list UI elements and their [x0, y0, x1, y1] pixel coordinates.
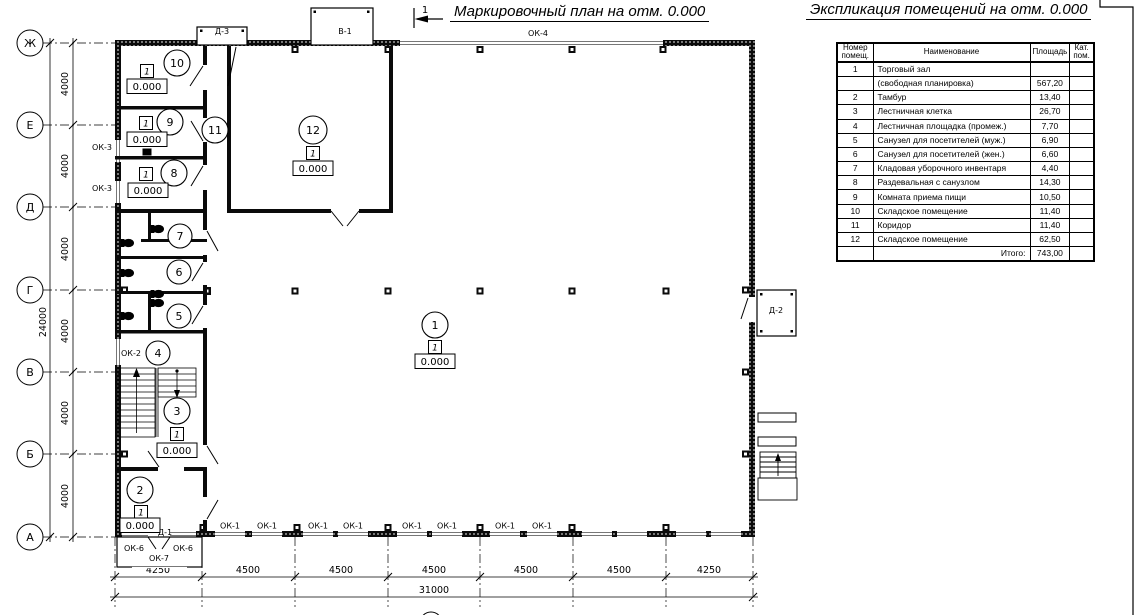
label-v1: В-1	[338, 27, 351, 36]
exterior-stair	[758, 452, 797, 500]
label-ok2: ОК-2	[121, 349, 141, 358]
table-row: 6Санузел для посетителей (жен.)6,60	[837, 147, 1094, 161]
label-d3: Д-3	[215, 27, 229, 36]
label-ok1: ОК-1	[220, 522, 240, 531]
room-6-annotation: 6	[167, 260, 191, 284]
table-row: 12Складское помещение62,50	[837, 233, 1094, 247]
room-number: 7	[177, 230, 184, 243]
cell-name: Тамбур	[873, 91, 1030, 105]
dim-4500: 4500	[607, 565, 631, 576]
cell-area: 6,60	[1030, 147, 1070, 161]
door-leaves	[148, 47, 748, 549]
frame-corner	[1100, 0, 1133, 615]
room-number: 12	[306, 124, 320, 137]
elevation: 0.000	[134, 186, 163, 197]
cell-area: 7,70	[1030, 119, 1070, 133]
cell-area	[1030, 62, 1070, 77]
cell-area: 14,30	[1030, 176, 1070, 190]
room-4-annotation: 4	[146, 341, 170, 365]
room-3-annotation: 3 1 0.000	[157, 398, 197, 458]
label-ok3: ОК-3	[92, 184, 112, 193]
room-number: 10	[170, 57, 184, 70]
section-number: 1	[422, 5, 428, 16]
table-row: 10Складское помещение11,40	[837, 204, 1094, 218]
axis-label-v: В	[26, 366, 34, 379]
room-number: 11	[208, 124, 222, 137]
label-ok6: ОК-6	[124, 544, 144, 553]
cell-area: 4,40	[1030, 162, 1070, 176]
table-row: 1Торговый зал	[837, 62, 1094, 77]
cell-name: Раздевальная с санузлом	[873, 176, 1030, 190]
cell-name: Санузел для посетителей (жен.)	[873, 147, 1030, 161]
label-ok4: ОК-4	[528, 29, 548, 38]
elevation: 0.000	[421, 357, 450, 368]
cell-num: 10	[837, 204, 873, 218]
cell-num	[837, 76, 873, 90]
table-row: 7Кладовая уборочного инвентаря4,40	[837, 162, 1094, 176]
dim-4000: 4000	[60, 237, 71, 261]
cell-cat	[1070, 133, 1094, 147]
plan-title: Маркировочный план на отм. 0.000	[450, 3, 709, 22]
cell-cat	[1070, 76, 1094, 90]
floor-number: 1	[144, 68, 150, 78]
axis-label-e: Е	[27, 119, 34, 132]
room-number: 2	[137, 484, 144, 497]
room-7-annotation: 7	[168, 224, 192, 248]
axis-label-d: Д	[26, 201, 35, 214]
cell-name: Санузел для посетителей (муж.)	[873, 133, 1030, 147]
cell-num: 9	[837, 190, 873, 204]
door-d2-opening	[749, 297, 755, 322]
dim-4000: 4000	[60, 484, 71, 508]
axis-label-zh: Ж	[24, 37, 36, 50]
dock-ramps	[758, 413, 796, 446]
floor-number: 1	[143, 171, 149, 181]
table-total-row: Итого:743,00	[837, 247, 1094, 262]
room-12-annotation: 12 1 0.000	[293, 116, 333, 176]
mid-columns	[292, 288, 670, 295]
cell-area: 10,50	[1030, 190, 1070, 204]
room-number: 3	[174, 405, 181, 418]
room-9-annotation: 1 9 0.000	[127, 109, 183, 147]
exterior-features	[117, 8, 797, 568]
header-room-number: Номер помещ.	[837, 43, 873, 62]
room-11-annotation: 11	[202, 117, 228, 143]
cell-name: Коридор	[873, 218, 1030, 232]
sink	[143, 149, 151, 155]
cell-name: Складское помещение	[873, 204, 1030, 218]
elevation: 0.000	[133, 82, 162, 93]
cell-area: 6,90	[1030, 133, 1070, 147]
cell-area: 11,40	[1030, 218, 1070, 232]
cell-name: Лестничная площадка (промеж.)	[873, 119, 1030, 133]
label-ok1: ОК-1	[495, 522, 515, 531]
label-ok1: ОК-1	[532, 522, 552, 531]
cell-cat	[1070, 176, 1094, 190]
axis-label-a: А	[26, 531, 34, 544]
cell-num: 6	[837, 147, 873, 161]
cell-total-area: 743,00	[1030, 247, 1070, 262]
cell-num	[837, 247, 873, 262]
cell-area: 11,40	[1030, 204, 1070, 218]
label-ok1: ОК-1	[402, 522, 422, 531]
interior-walls	[115, 46, 393, 531]
axis-label-g: Г	[27, 284, 34, 297]
cell-cat	[1070, 162, 1094, 176]
room-8-annotation: 1 8 0.000	[128, 160, 187, 198]
dim-4000: 4000	[60, 72, 71, 96]
table-header-row: Номер помещ. Наименование Площадь Кат. п…	[837, 43, 1094, 62]
table-row: 3Лестничная клетка26,70	[837, 105, 1094, 119]
section-marker-top: 1	[414, 5, 443, 28]
header-area: Площадь	[1030, 43, 1070, 62]
floor-number: 1	[432, 344, 438, 354]
label-ok1: ОК-1	[308, 522, 328, 531]
cell-cat	[1070, 147, 1094, 161]
cell-area: 567,20	[1030, 76, 1070, 90]
cell-num: 7	[837, 162, 873, 176]
cell-cat	[1070, 105, 1094, 119]
elevation: 0.000	[126, 521, 155, 532]
dim-31000: 31000	[419, 585, 449, 596]
top-wall-pilasters	[292, 46, 667, 53]
drawing-canvas: Ж Е Д Г В Б А 4000 4000 4000 4000 4000 4…	[0, 0, 1137, 615]
table-row: 8Раздевальная с санузлом14,30	[837, 176, 1094, 190]
dim-4500: 4500	[514, 565, 538, 576]
room-number: 1	[432, 319, 439, 332]
label-ok3: ОК-3	[92, 143, 112, 152]
cell-name: Кладовая уборочного инвентаря	[873, 162, 1030, 176]
dim-24000: 24000	[38, 307, 49, 337]
dim-4000: 4000	[60, 319, 71, 343]
cell-name: Складское помещение	[873, 233, 1030, 247]
cell-num: 11	[837, 218, 873, 232]
header-category: Кат. пом.	[1070, 43, 1094, 62]
dim-4500: 4500	[236, 565, 260, 576]
cell-cat	[1070, 119, 1094, 133]
elevation: 0.000	[299, 164, 328, 175]
table-row: 4Лестничная площадка (промеж.)7,70	[837, 119, 1094, 133]
cell-name: Комната приема пищи	[873, 190, 1030, 204]
explication-table: Номер помещ. Наименование Площадь Кат. п…	[836, 42, 1095, 262]
table-row: 11Коридор11,40	[837, 218, 1094, 232]
table-row: 9Комната приема пищи10,50	[837, 190, 1094, 204]
cell-area: 13,40	[1030, 91, 1070, 105]
room-1-annotation: 1 1 0.000	[415, 312, 455, 369]
room-number: 4	[155, 347, 162, 360]
label-ok1: ОК-1	[343, 522, 363, 531]
room-number: 5	[176, 310, 183, 323]
elevation: 0.000	[163, 446, 192, 457]
room-10-annotation: 1 10 0.000	[127, 50, 190, 94]
axis-label-b: Б	[26, 448, 34, 461]
label-ok6: ОК-6	[173, 544, 193, 553]
floor-number: 1	[143, 120, 149, 130]
label-ok7: ОК-7	[149, 554, 169, 563]
grid-axes-left: Ж Е Д Г В Б А	[17, 30, 121, 550]
explication-title: Экспликация помещений на отм. 0.000	[806, 1, 1091, 20]
room-number: 6	[176, 266, 183, 279]
window-ok3-lower	[115, 181, 121, 203]
room-number: 8	[171, 167, 178, 180]
floor-number: 1	[310, 150, 316, 160]
header-name: Наименование	[873, 43, 1030, 62]
elevation: 0.000	[133, 135, 162, 146]
label-ok1: ОК-1	[437, 522, 457, 531]
floor-number: 1	[174, 431, 180, 441]
window-ok4	[400, 40, 663, 46]
cell-num: 12	[837, 233, 873, 247]
room-2-annotation: 2 1 0.000	[120, 477, 160, 533]
cell-num: 4	[837, 119, 873, 133]
cell-cat	[1070, 62, 1094, 77]
label-ok1: ОК-1	[257, 522, 277, 531]
dim-4250: 4250	[697, 565, 721, 576]
table-row: (свободная планировка)567,20	[837, 76, 1094, 90]
dim-4000: 4000	[60, 154, 71, 178]
cell-num: 8	[837, 176, 873, 190]
cell-num: 3	[837, 105, 873, 119]
cell-name: Торговый зал	[873, 62, 1030, 77]
cell-area: 62,50	[1030, 233, 1070, 247]
cell-name: Лестничная клетка	[873, 105, 1030, 119]
table-row: 2Тамбур13,40	[837, 91, 1094, 105]
cell-name: (свободная планировка)	[873, 76, 1030, 90]
cell-num: 2	[837, 91, 873, 105]
dim-4500: 4500	[329, 565, 353, 576]
floor-number: 1	[138, 509, 144, 519]
dim-4000: 4000	[60, 401, 71, 425]
cell-cat	[1070, 204, 1094, 218]
cell-cat	[1070, 247, 1094, 262]
cell-num: 1	[837, 62, 873, 77]
cell-area: 26,70	[1030, 105, 1070, 119]
room-5-annotation: 5	[167, 304, 191, 328]
table-row: 5Санузел для посетителей (муж.)6,90	[837, 133, 1094, 147]
cell-cat	[1070, 190, 1094, 204]
cell-total-label: Итого:	[873, 247, 1030, 262]
cell-cat	[1070, 218, 1094, 232]
dim-4500: 4500	[422, 565, 446, 576]
label-d2: Д-2	[769, 306, 783, 315]
cell-num: 5	[837, 133, 873, 147]
dimensions-bottom: 4250 4500 4500 4500 4500 4500 4250 31000	[110, 537, 758, 607]
room-number: 9	[167, 116, 174, 129]
cell-cat	[1070, 91, 1094, 105]
cell-cat	[1070, 233, 1094, 247]
